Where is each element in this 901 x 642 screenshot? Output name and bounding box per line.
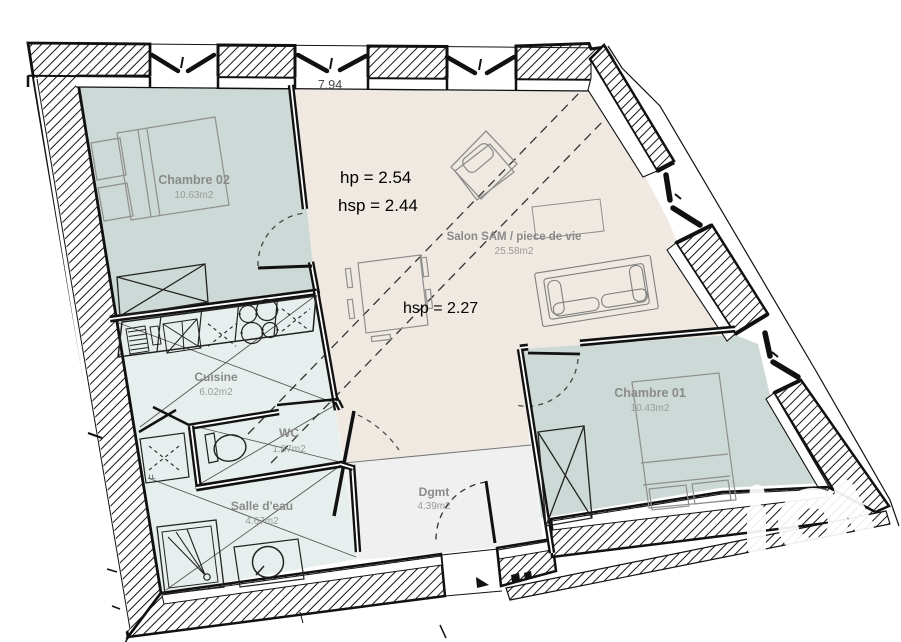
svg-text:4.67m2: 4.67m2 xyxy=(245,516,279,527)
svg-text:Chambre 02: Chambre 02 xyxy=(158,173,230,187)
svg-text:4.39m2: 4.39m2 xyxy=(417,501,451,512)
svg-text:Salle d'eau: Salle d'eau xyxy=(231,499,293,513)
svg-text:hsp = 2.44: hsp = 2.44 xyxy=(338,196,418,215)
svg-text:25.58m2: 25.58m2 xyxy=(495,246,534,257)
svg-text:Dgmt: Dgmt xyxy=(419,485,450,499)
svg-text:10.63m2: 10.63m2 xyxy=(175,190,214,201)
svg-text:7.94: 7.94 xyxy=(318,78,342,92)
svg-text:Cuisine: Cuisine xyxy=(194,370,238,384)
svg-text:10.43m2: 10.43m2 xyxy=(631,403,670,414)
svg-text:6.02m2: 6.02m2 xyxy=(199,387,233,398)
svg-text:Salon SAM / piece de vie: Salon SAM / piece de vie xyxy=(447,231,582,243)
svg-text:hsp = 2.27: hsp = 2.27 xyxy=(403,300,478,317)
svg-text:WC: WC xyxy=(279,426,299,440)
svg-text:Chambre 01: Chambre 01 xyxy=(614,386,686,400)
svg-text:1.87m2: 1.87m2 xyxy=(272,444,306,455)
svg-text:hp = 2.54: hp = 2.54 xyxy=(340,168,411,187)
svg-text:LL: LL xyxy=(149,475,156,481)
